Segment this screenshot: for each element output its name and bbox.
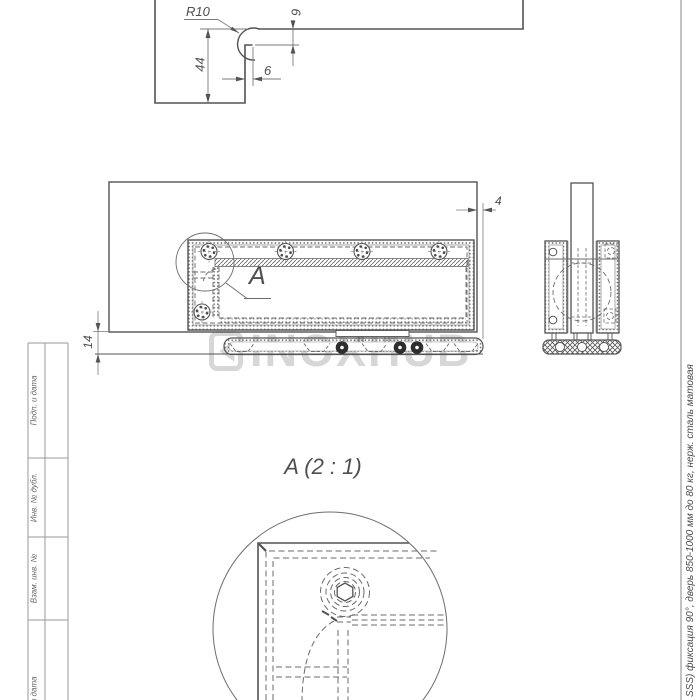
main-view bbox=[93, 182, 496, 375]
radius-callout-label: R10 bbox=[186, 4, 210, 19]
dim-4-label: 4 bbox=[495, 194, 502, 208]
detail-marker-label: A bbox=[249, 262, 266, 291]
drawing-sheet: INOXHUB bbox=[0, 0, 700, 700]
dim-9-label: 9 bbox=[289, 3, 304, 23]
titleblock-cell-podp-i-data-2: Подп. и дата bbox=[30, 647, 43, 700]
drawing-linework bbox=[0, 0, 700, 700]
detail-title: A (2 : 1) bbox=[268, 454, 378, 480]
titleblock-cell-podp-i-data-1: Подп. и дата bbox=[30, 346, 43, 456]
hex-socket bbox=[337, 583, 353, 601]
bottom-bar bbox=[224, 338, 483, 355]
side-view bbox=[543, 183, 621, 354]
detail-a-view bbox=[213, 512, 447, 700]
dim-44-label: 44 bbox=[193, 50, 208, 80]
glass-edge bbox=[571, 183, 593, 333]
product-note: 5S SSS) фиксация 90°, дверь 850-1000 мм … bbox=[685, 364, 696, 700]
top-detail-view bbox=[155, 0, 523, 103]
titleblock-cell-vzam-inv: Взам. инв. № bbox=[30, 524, 43, 634]
dim-6-label: 6 bbox=[264, 63, 271, 78]
dim-14-label: 14 bbox=[81, 330, 95, 354]
